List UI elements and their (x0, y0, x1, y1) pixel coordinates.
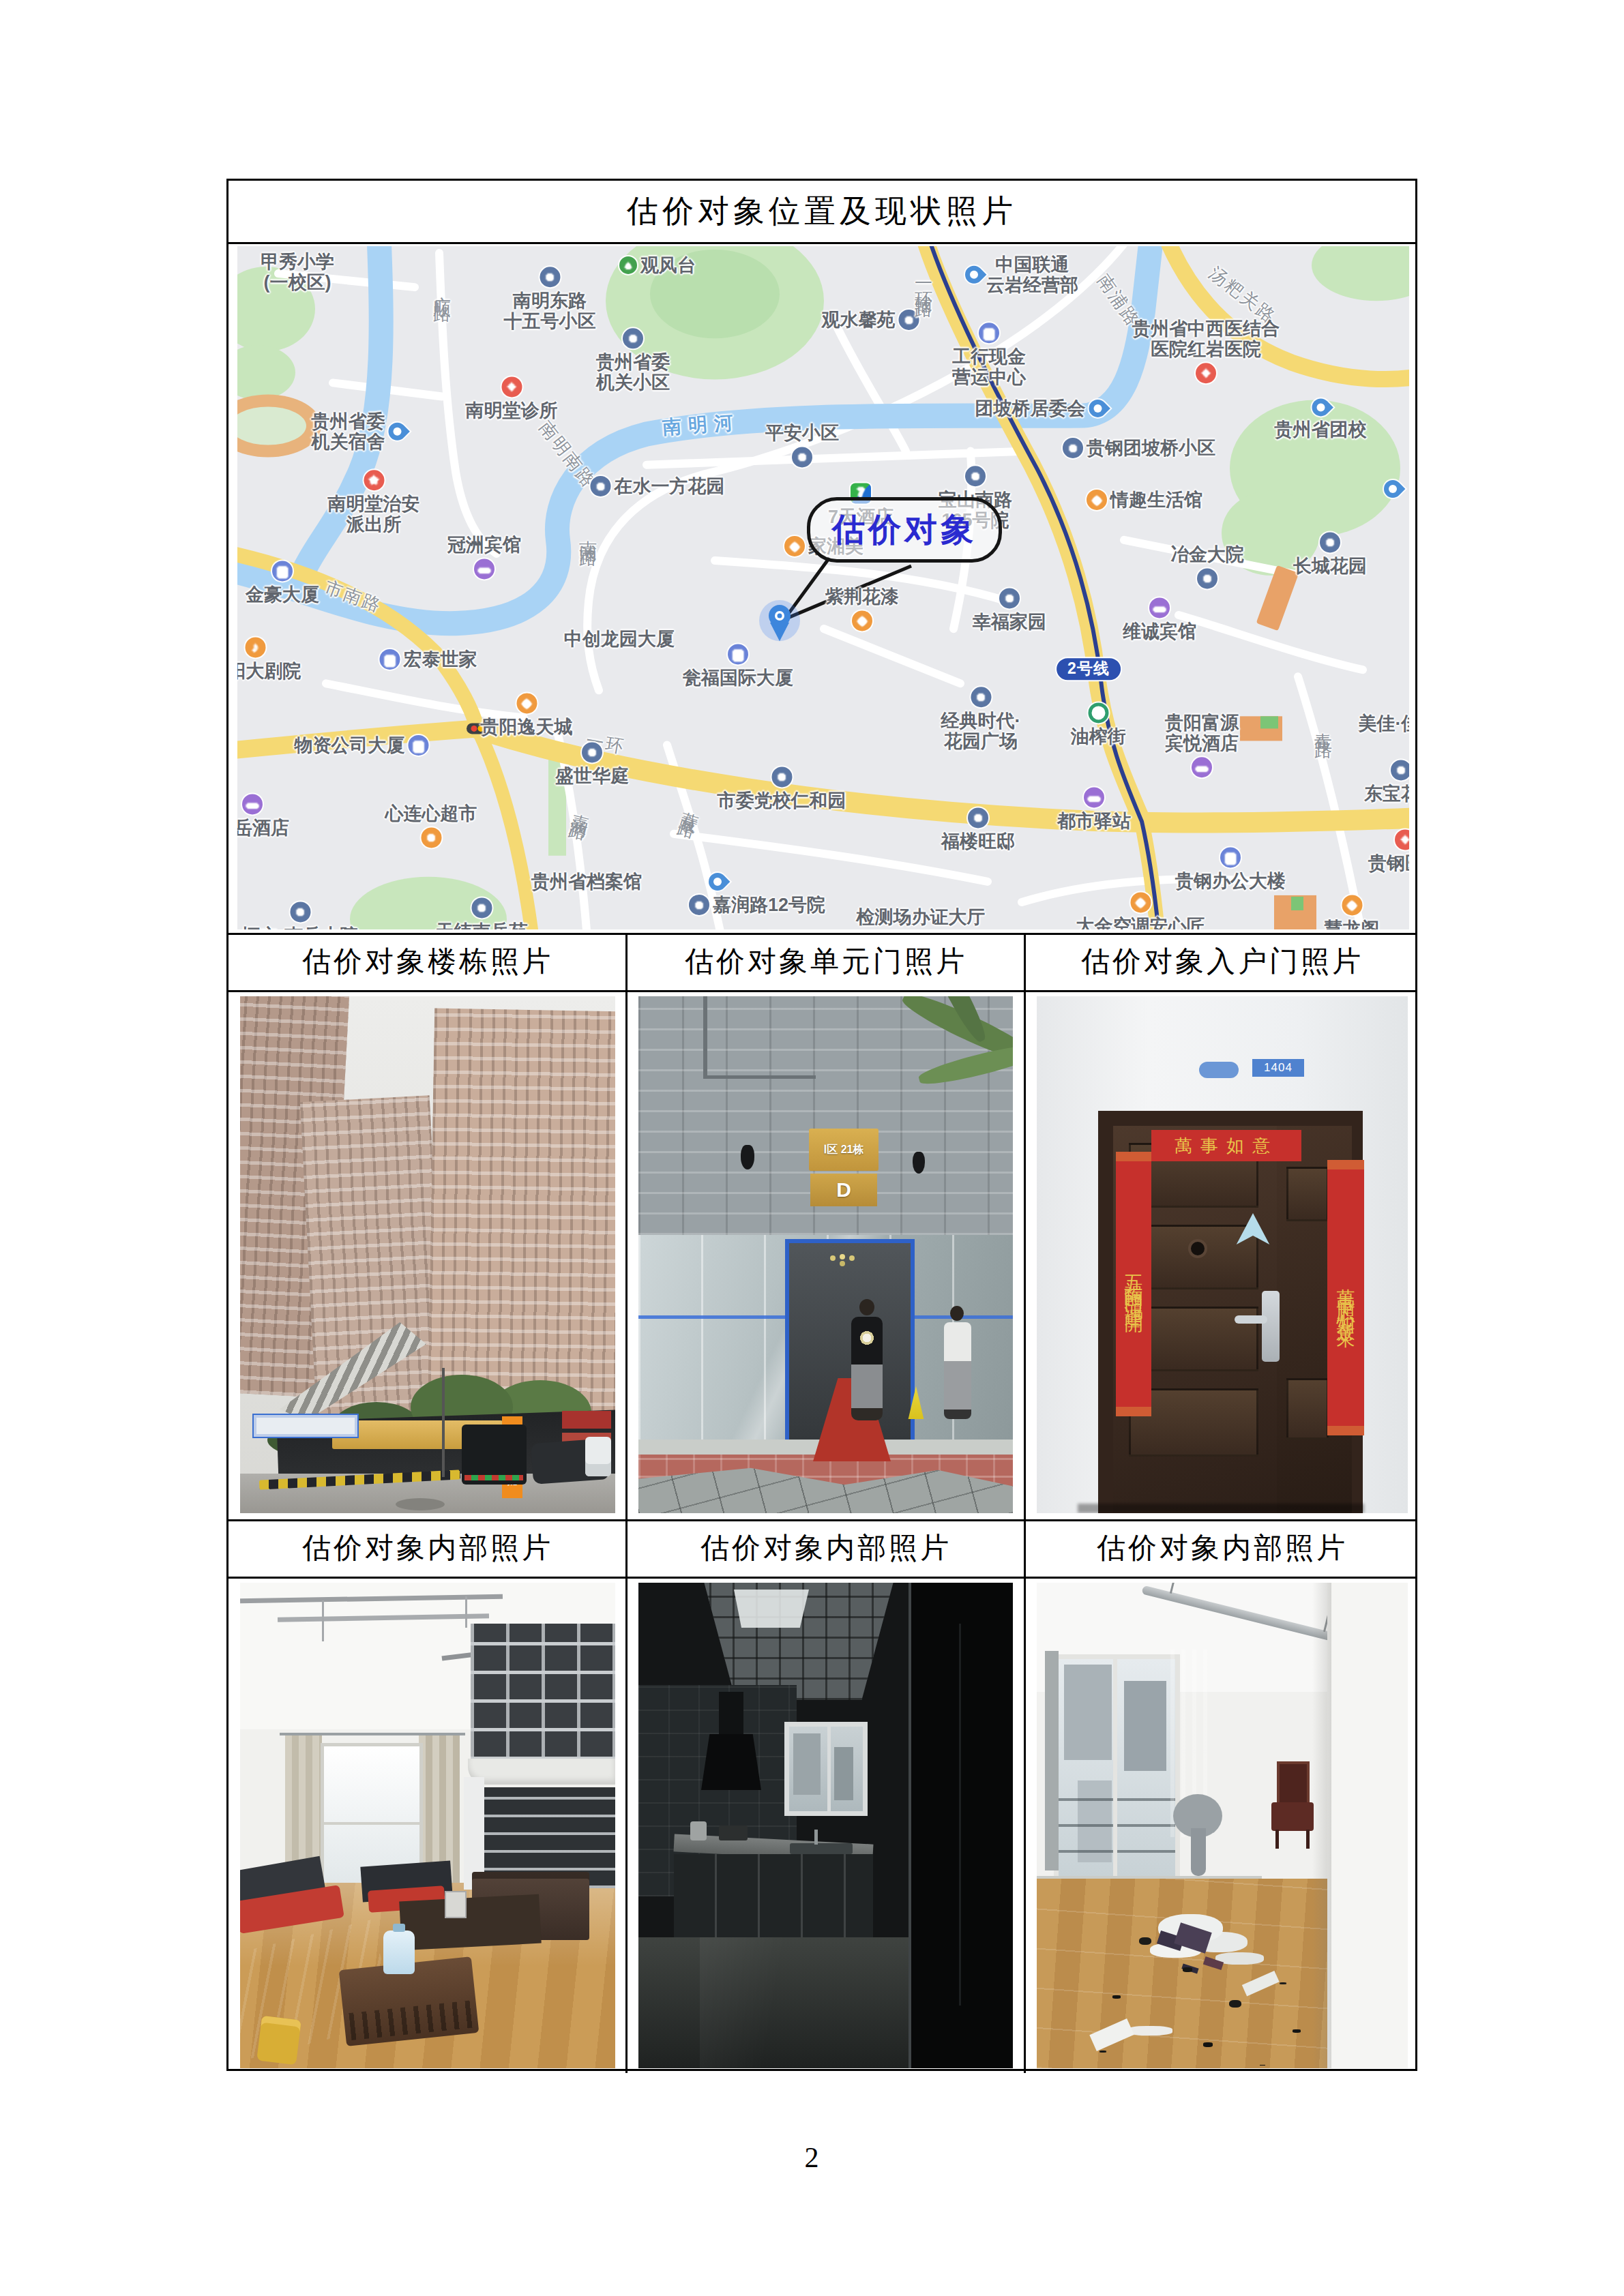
map-place-label: ▆物资公司大厦 (295, 735, 429, 756)
map-place-label: ■观水馨苑 (822, 310, 919, 330)
map-label-text: 贵州省委机关宿舍 (312, 411, 385, 452)
map-place-label: +贵州省中西医结合医院红岩医院 (1132, 318, 1280, 383)
map-road-label: 青年路 (1313, 719, 1333, 731)
map-place-label: ▬南岳酒店 (237, 794, 289, 838)
map-place-label: ■长城花园 (1293, 532, 1367, 576)
map-label-text: 盛世华庭 (555, 766, 629, 786)
map-label-text: 贵州省中西医结合医院红岩医院 (1132, 318, 1280, 359)
map-place-label: 甲秀小学(一校区) (261, 252, 334, 293)
shop-icon: ◆ (1130, 892, 1151, 912)
map-place-label: ■市委党校仁和园 (718, 766, 846, 811)
map-label-text: 汤粑关路 (1205, 263, 1280, 327)
map-label-text: 物资公司大厦 (295, 735, 405, 756)
subject-callout: 估价对象 (807, 497, 1002, 563)
map-place-label: 油榨街 (1071, 702, 1126, 747)
cross-icon: + (501, 376, 522, 397)
map-labels: 甲秀小学(一校区)广顺路■南明东路十五号小区▲观风台■观水馨苑中国联通云岩经营部… (237, 246, 1409, 929)
bus-icon: ■ (792, 447, 812, 468)
bus-icon: ■ (1197, 569, 1217, 589)
sink-shape (790, 1843, 853, 1854)
map-label-text: 甲秀小学(一校区) (261, 252, 334, 293)
map-label-text: 广顺路 (432, 282, 452, 295)
pole-shape (442, 1368, 445, 1477)
bus-icon: ■ (290, 901, 310, 922)
map-place-label: ■盛世华庭 (555, 742, 629, 786)
station-icon (1088, 702, 1108, 723)
map-label-text: 检测场办证大厅 (857, 907, 986, 927)
map-place-label: ▆金豪大厦 (246, 561, 319, 605)
map-label-text: 恒立·南岳大院 (242, 925, 359, 929)
photo-table: 估价对象位置及现状照片 (226, 179, 1417, 2071)
chandelier-shape (840, 1254, 845, 1259)
door-number-plate: 1404 (1252, 1059, 1304, 1077)
map-label-text: 冶金大院 (1170, 544, 1244, 565)
park-icon: ▲ (619, 256, 637, 274)
map-place-label: ♪贵阳大剧院 (237, 637, 301, 681)
bus-icon: ■ (540, 267, 560, 287)
map-label-text: 冠洲宾馆 (447, 535, 521, 555)
map-label-text: 中创龙园大厦 (564, 629, 675, 649)
map-label-text: 大金空调安心匠 (1076, 916, 1205, 929)
map-label-text: 贵钢办公大楼 (1175, 871, 1286, 891)
photo-interior-kitchen (638, 1583, 1013, 2068)
map-place-label: ◆情趣生活馆 (1087, 490, 1202, 510)
bus-icon: ■ (582, 742, 602, 762)
map-label-text: 一环辅路 (913, 273, 933, 290)
door-couplet-left: 五福臨門鴻運開 (1116, 1152, 1151, 1416)
map-label-text: 贵州省委机关小区 (596, 352, 670, 393)
map-label-text: 市南路 (322, 577, 385, 616)
table-line (625, 933, 628, 2073)
metro-line-badge: 2号线 (1055, 657, 1122, 681)
map-label-text: 贵阳大剧院 (237, 661, 301, 681)
map-label-text: 幸福家园 (973, 612, 1046, 632)
manhole-shape (396, 1498, 445, 1510)
map-place-label (709, 873, 726, 891)
building-icon: ▆ (979, 323, 999, 343)
wall-edge-shape (909, 1583, 911, 2068)
red-sign-shape (562, 1411, 611, 1429)
range-hood-shape (701, 1734, 761, 1790)
document-page: 估价对象位置及现状照片 (0, 0, 1624, 2296)
map-place-label: ◆慧龙阁 (1325, 895, 1380, 929)
map-place-label: ■幸福家园 (973, 588, 1046, 632)
map-road-label: 一环辅路 (913, 273, 933, 290)
map-label-text: 蓑草路 (683, 796, 705, 814)
banner-shape (252, 1414, 359, 1438)
cabinet-shape (674, 1854, 873, 1939)
hotel-icon: ▬ (1084, 787, 1104, 807)
map-label-text: 油榨街 (1071, 726, 1126, 747)
map-place-label: 美佳·佳苑 (1359, 713, 1410, 734)
photo-unit-door: Ⅰ区 21栋 D (638, 996, 1013, 1513)
loft-fascia-shape (468, 1759, 615, 1785)
bus-icon: ■ (591, 476, 611, 496)
map-place-label: ▬贵阳富源宾悦酒店 (1165, 713, 1239, 777)
stool-shape (256, 2016, 301, 2066)
door-edge-shape (959, 1624, 961, 2006)
map-label-text: 观风台 (640, 255, 696, 275)
cross-icon: + (1196, 363, 1216, 384)
building-icon: ▆ (380, 649, 400, 670)
pot-shape (719, 1825, 748, 1840)
map-road-label: 广顺路 (432, 282, 452, 295)
pipe-shape (703, 1075, 816, 1079)
table-line (228, 1577, 1415, 1579)
cross-icon: + (1395, 829, 1409, 850)
map-label-text: 南明堂治安派出所 (328, 494, 420, 535)
van-shape (462, 1425, 527, 1485)
header-unit-door-photo: 估价对象单元门照片 (627, 933, 1025, 990)
bus-icon: ■ (999, 588, 1020, 608)
map-label-text: 美佳·佳苑 (1359, 713, 1410, 734)
window-shape (784, 1722, 868, 1816)
map-place-label: ■心连心超市 (385, 803, 477, 848)
map-place-label: ■南明东路十五号小区 (504, 267, 596, 331)
door-handle-shape (1235, 1315, 1267, 1324)
photo-entry-door: 1404 萬事如意 五福臨門鴻運開 萬事順心如意來 (1037, 996, 1408, 1513)
header-building-photo: 估价对象楼栋照片 (228, 933, 627, 990)
header-interior-photo-3: 估价对象内部照片 (1025, 1519, 1419, 1577)
map-label-text: 情趣生活馆 (1110, 490, 1202, 510)
page-number: 2 (784, 2141, 839, 2174)
map-place-label: +南明堂诊所 (466, 376, 558, 421)
map-road-label: 市南路 (322, 577, 385, 616)
curtain-tail-shape (1191, 1828, 1206, 1876)
map-label-text: 贵阳逸天城 (481, 717, 573, 737)
map-label-text: 市委党校仁和园 (718, 790, 846, 811)
faucet-shape (814, 1830, 818, 1845)
hotel-icon: ▬ (1192, 758, 1212, 778)
building-icon: ▆ (728, 644, 748, 664)
pin-icon (385, 419, 410, 445)
bus-icon: ■ (689, 895, 709, 915)
photo-interior-living (240, 1583, 615, 2068)
map-place-label: +贵钢医院 (1368, 829, 1409, 874)
map-place-label: ■在水一方花园 (591, 476, 725, 496)
heater-shape (445, 1891, 467, 1918)
map-label-text: 贵钢团坡桥小区 (1087, 438, 1215, 458)
map-label-text: 南明堂诊所 (466, 400, 558, 421)
table-line (228, 242, 1415, 244)
chair-shape (585, 1437, 611, 1476)
map-road-label: 嘉润路 (573, 799, 595, 816)
photo-building: 阳光100幼儿 (240, 996, 615, 1513)
map-label-text: 2号线 (1055, 657, 1122, 681)
map-place-label: 贵州省档案馆 (531, 871, 642, 892)
unit-sign-letter: D (810, 1174, 877, 1206)
hotel-icon: ▬ (242, 794, 263, 814)
map-label-text: 心连心超市 (385, 803, 477, 824)
curtain-shape (1045, 1651, 1059, 1870)
map-place-label: ■东宝花园 (1364, 760, 1409, 804)
map-place-label: ◆紫荆花漆 (825, 586, 899, 631)
map-place-label: ■嘉润路12号院 (689, 895, 825, 915)
bus-icon: ■ (965, 466, 986, 486)
table-line (228, 990, 1415, 992)
map-place-label: ■平安小区 (765, 423, 839, 467)
map-place-label: ◆大金空调安心匠 (1076, 892, 1205, 929)
loft-railing-shape (471, 1624, 615, 1760)
header-interior-photo-1: 估价对象内部照片 (228, 1519, 627, 1577)
hotel-icon: ▬ (1149, 597, 1170, 618)
map-place-label: ▆工行现金营运中心 (952, 323, 1026, 387)
pin-icon (1381, 477, 1406, 502)
map-label-text: 长城花园 (1293, 556, 1367, 576)
bench-shape (399, 1894, 541, 1951)
map-place-label: 贵州省委机关宿舍 (312, 411, 407, 452)
door-panel-shape (1286, 1378, 1329, 1440)
bus-icon: ■ (771, 766, 792, 787)
bus-icon: ■ (971, 687, 991, 707)
building-icon: ▆ (1220, 847, 1241, 867)
person-shape (944, 1322, 971, 1419)
map-place-label: 团坡桥居委会 (975, 398, 1107, 419)
chair-shape (1277, 1761, 1310, 1806)
map-label-text: 慧龙阁 (1325, 919, 1380, 929)
chair-shape (1271, 1802, 1314, 1831)
building-icon: ▆ (272, 561, 293, 581)
lantern-shape (913, 1152, 925, 1174)
dark-wall-shape (911, 1583, 1013, 2068)
hood-duct-shape (719, 1692, 743, 1735)
map-label-text: 南明东路十五号小区 (504, 290, 596, 331)
shop-icon: ◆ (852, 611, 872, 631)
map-label-text: 贵州省团校 (1275, 419, 1367, 440)
map-label-text: 福楼旺邸 (941, 831, 1015, 852)
map-place-label: ■贵钢团坡桥小区 (1063, 438, 1215, 458)
ceiling-panel-shape (734, 1590, 809, 1628)
map-label-text: 贵阳富源宾悦酒店 (1165, 713, 1239, 754)
map-label-text: 在水一方花园 (615, 476, 725, 496)
map-place-label (1384, 480, 1402, 498)
map-place-label: ■恒立·南岳大院 (242, 901, 359, 929)
header-interior-photo-2: 估价对象内部照片 (627, 1519, 1025, 1577)
map-road-label: 南浦路 (578, 526, 597, 539)
bus-icon: ■ (899, 310, 919, 330)
map-road-label: 汤粑关路 (1205, 263, 1280, 327)
photo-interior-room (1037, 1583, 1408, 2068)
header-entry-door-photo: 估价对象入户门照片 (1025, 933, 1419, 990)
shop-icon: ◆ (784, 536, 805, 556)
map-place-label: ▆瓮福国际大厦 (683, 644, 793, 688)
map-label-text: 瓮福国际大厦 (683, 668, 793, 688)
map-label-text: 平安小区 (765, 423, 839, 443)
map-label-text: 嘉润路 (573, 799, 595, 816)
door-couplet-right: 萬事順心如意來 (1327, 1160, 1364, 1435)
map-label-text: 观水馨苑 (822, 310, 896, 330)
map-label-text: 东宝花园 (1364, 784, 1409, 804)
map-label-text: 南明河 (662, 411, 741, 438)
map-place-label: 南明河 (662, 411, 741, 438)
map-label-text: 工行现金营运中心 (952, 346, 1026, 387)
map-label-text: 紫荆花漆 (825, 586, 899, 607)
map-place-label: ■天纬南岳苑 (436, 897, 528, 929)
map-label-text: 贵钢医院 (1368, 853, 1409, 874)
hotel-icon: ▬ (474, 559, 494, 580)
cart-icon: ■ (421, 828, 441, 848)
map-place-label: 贵州省团校 (1275, 398, 1367, 440)
rod-shape (465, 1596, 467, 1628)
debris-shape (1139, 1937, 1151, 1945)
unit-sign: Ⅰ区 21栋 (809, 1129, 879, 1171)
map-label-text: 青年路 (1313, 719, 1333, 731)
bus-icon: ■ (1320, 532, 1340, 552)
shop-icon: ◆ (1087, 490, 1107, 510)
map-place-label: ◆贵阳逸天城 (481, 693, 573, 737)
map-place-label: ▆宏泰世家 (380, 649, 477, 670)
pin-icon (1308, 395, 1333, 420)
person-shape (851, 1317, 883, 1420)
rod-shape (322, 1600, 324, 1641)
bus-icon: ■ (1391, 760, 1409, 780)
kettle-shape (690, 1821, 707, 1840)
table-line (1024, 933, 1026, 2073)
pin-icon (962, 263, 987, 288)
door-top-banner: 萬事如意 (1151, 1130, 1301, 1161)
bus-icon: ■ (623, 328, 643, 348)
partition-wall-shape (1327, 1583, 1408, 2068)
wall-corner-shadow (1312, 1583, 1331, 2068)
map-place-label: ■贵州省委机关小区 (596, 328, 670, 393)
map-place-label: ■福楼旺邸 (941, 807, 1015, 852)
map-label-text: 团坡桥居委会 (975, 398, 1086, 419)
bus-icon: ■ (471, 897, 492, 918)
lantern-shape (741, 1145, 754, 1169)
water-jug-shape (383, 1930, 415, 1974)
door-plate-shape (1199, 1062, 1239, 1078)
shop-icon: ◆ (1342, 895, 1362, 915)
map-place-label: ▬冠洲宾馆 (447, 535, 521, 579)
building-icon: ▆ (409, 735, 429, 756)
door-lock-shape (1262, 1291, 1280, 1362)
peephole-shape (1191, 1242, 1205, 1255)
map-place-label: ★南明堂治安派出所 (328, 470, 420, 535)
table-title: 估价对象位置及现状照片 (228, 181, 1415, 242)
map-place-label: 中创龙园大厦 (564, 629, 675, 649)
map-place-label: ■冶金大院 (1170, 544, 1244, 588)
map-label-text: 中国联通云岩经营部 (986, 254, 1078, 295)
pin-icon (705, 869, 730, 895)
map-label-text: 都市驿站 (1057, 811, 1131, 831)
bus-icon: ■ (1063, 438, 1083, 458)
map-label-text: 南浦路 (578, 526, 597, 539)
map-label-text: 南岳酒店 (237, 818, 289, 838)
location-map: 甲秀小学(一校区)广顺路■南明东路十五号小区▲观风台■观水馨苑中国联通云岩经营部… (237, 246, 1409, 929)
door-panel-shape (1286, 1167, 1329, 1221)
map-place-label: ▬维诚宾馆 (1123, 597, 1196, 642)
map-place-label: ▬都市驿站 (1057, 787, 1131, 831)
map-place-label: ▆贵钢办公大楼 (1175, 847, 1286, 891)
map-label-text: 嘉润路12号院 (713, 895, 825, 915)
shop-icon: ◆ (516, 693, 537, 713)
map-label-text: 维诚宾馆 (1123, 621, 1196, 642)
map-place-label: 检测场办证大厅 (857, 907, 986, 927)
map-road-label: 蓑草路 (683, 796, 705, 814)
window-mullion-shape (1113, 1656, 1117, 1879)
pipe-shape (703, 996, 707, 1078)
star-icon: ★ (364, 470, 384, 490)
map-label-text: 经典时代·花园广场 (941, 711, 1021, 751)
map-place-label: ■经典时代·花园广场 (941, 687, 1021, 751)
map-label-text: 贵州省档案馆 (531, 871, 642, 892)
map-place-label: 中国联通云岩经营部 (965, 254, 1078, 295)
map-label-text: 天纬南岳苑 (436, 921, 528, 929)
curtain-rod-shape (280, 1733, 465, 1735)
map-place-label: ▲观风台 (619, 255, 696, 275)
bus-icon: ■ (968, 807, 988, 828)
pin-icon (1085, 396, 1110, 421)
shadow-shape (1078, 1504, 1364, 1513)
map-label-text: 宏泰世家 (404, 649, 477, 670)
chair-legs-shape (1275, 1830, 1310, 1849)
map-label-text: 金豪大厦 (246, 584, 319, 605)
tower-shape (428, 1009, 615, 1421)
music-icon: ♪ (245, 637, 265, 657)
